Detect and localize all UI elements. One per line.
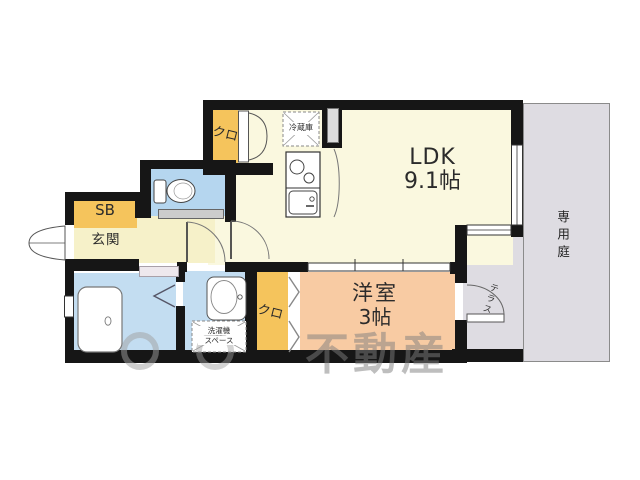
wall-ldk-right-corner <box>511 223 523 237</box>
wall-western-right-lo <box>455 320 467 352</box>
wall-top <box>203 100 523 110</box>
entrance-label: 玄関 <box>78 233 134 247</box>
floorplan-canvas: LDK 9.1帖 洋室 3帖 玄関 SB クロ クロ 冷蔵庫 洗濯機 スペース … <box>0 0 640 480</box>
ldk-right-window <box>512 145 523 225</box>
entry-door-arc <box>29 226 65 260</box>
closet-lower-door-strip <box>288 272 300 352</box>
entrance-step <box>139 266 179 277</box>
wall-ldk-right-upper <box>511 103 523 145</box>
refrigerator-label: 冷蔵庫 <box>283 124 319 132</box>
washer-label-line2: スペース <box>198 336 240 345</box>
shoe-box-label: SB <box>80 203 130 219</box>
wall-bath-divider-bot <box>176 306 185 353</box>
kitchen-door-panel <box>327 108 339 143</box>
wall-entrance-bottom <box>65 259 139 271</box>
wall-toilet-right <box>225 160 236 222</box>
wall-toilet-top <box>140 160 236 169</box>
wall-western-right-up <box>455 225 467 283</box>
ldk-label: LDK <box>385 146 480 169</box>
bathroom <box>72 273 176 353</box>
hallway <box>135 215 215 263</box>
watermark-text: 不動産 <box>305 318 449 382</box>
toilet-sliding-door <box>158 209 224 219</box>
washer-label-line1: 洗濯機 <box>198 326 240 335</box>
western-room-label: 洋室 <box>330 282 420 304</box>
wall-hall-bottom-b <box>225 262 308 272</box>
private-garden-label: 専用庭 <box>556 208 569 264</box>
wall-western-top-right <box>450 262 467 274</box>
wall-sb-right <box>135 192 151 218</box>
wall-left-upper <box>65 192 74 225</box>
ldk-area-label: 9.1帖 <box>385 170 480 193</box>
